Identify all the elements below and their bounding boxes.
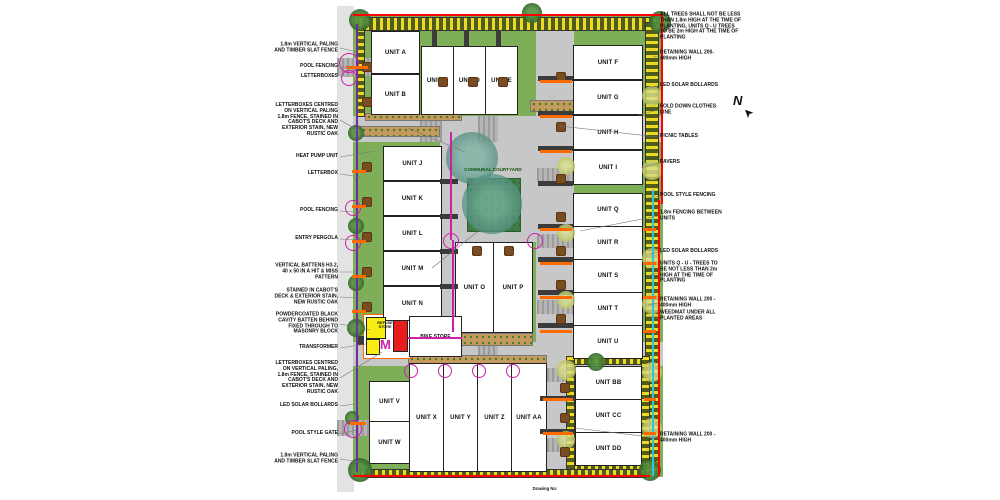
unit-label: UNIT DD bbox=[596, 446, 622, 452]
picnic-table bbox=[472, 246, 482, 256]
tree bbox=[349, 9, 371, 31]
garden-bed bbox=[455, 333, 533, 346]
courtyard-tree bbox=[462, 174, 522, 234]
unit-label: UNIT K bbox=[402, 196, 423, 202]
pool-fence-line bbox=[408, 337, 462, 339]
pool-gate-m: M bbox=[380, 338, 391, 351]
annotation-left: POOL FENCING bbox=[274, 64, 338, 70]
picnic-table bbox=[560, 383, 570, 393]
annotation-left: TRANSFORMER bbox=[274, 345, 338, 351]
unit-label: UNIT R bbox=[597, 240, 618, 246]
entry-pergola bbox=[643, 262, 656, 265]
picnic-table bbox=[560, 447, 570, 457]
unit-label: UNIT CC bbox=[596, 413, 622, 419]
entry-pergola bbox=[643, 228, 656, 231]
pool-fence-line bbox=[452, 240, 454, 332]
entry-pergola bbox=[540, 296, 572, 299]
unit-label: UNIT P bbox=[503, 285, 524, 291]
annotation-left: 1.8m VERTICAL PALING AND TIMBER SLAT FEN… bbox=[274, 453, 338, 465]
picnic-table bbox=[560, 413, 570, 423]
unit-building: UNIT J bbox=[383, 146, 442, 181]
picnic-table bbox=[556, 212, 566, 222]
garage-apron bbox=[440, 284, 458, 289]
picnic-table bbox=[362, 97, 372, 107]
unit-label: UNIT U bbox=[597, 339, 618, 345]
annotation-right: UNITS Q - U - TREES TO BE NOT LESS THAN … bbox=[660, 262, 722, 285]
unit-building: UNIT DD bbox=[575, 432, 642, 466]
entry-pergola bbox=[350, 422, 366, 425]
unit-label: UNIT S bbox=[598, 273, 619, 279]
picnic-table bbox=[556, 174, 566, 184]
unit-label: UNIT G bbox=[597, 95, 619, 101]
picnic-table bbox=[468, 77, 478, 87]
annotation-left: LETTERBOXES CENTRED ON VERTICAL PALING 1… bbox=[274, 103, 338, 138]
entry-pergola bbox=[352, 170, 366, 173]
unit-label: UNIT M bbox=[402, 266, 424, 272]
annotation-right: FOLD DOWN CLOTHES LINE bbox=[660, 104, 722, 116]
picnic-table bbox=[556, 122, 566, 132]
garage-apron bbox=[464, 30, 469, 46]
unit-building: UNIT S bbox=[573, 259, 643, 293]
unit-label: UNIT Z bbox=[484, 415, 505, 421]
tree bbox=[642, 160, 662, 180]
garage-apron bbox=[440, 179, 458, 184]
unit-building: UNIT M bbox=[383, 251, 442, 286]
entry-pergola bbox=[352, 275, 366, 278]
entry-pergola bbox=[346, 66, 368, 69]
entry-pergola bbox=[644, 432, 656, 435]
pool-gate-arc bbox=[443, 233, 459, 249]
entry-pergola bbox=[352, 310, 366, 313]
pool-gate-arc bbox=[345, 235, 361, 251]
annotation-right: RETAINING WALL 200 - 400mm HIGH bbox=[660, 297, 722, 309]
picnic-table bbox=[498, 77, 508, 87]
unit-building: UNIT G bbox=[573, 80, 643, 115]
annotation-left: LED SOLAR BOLLARDS bbox=[274, 403, 338, 409]
boundary-red-bottom bbox=[353, 475, 650, 477]
picnic-table bbox=[556, 246, 566, 256]
unit-label: UNIT AA bbox=[516, 415, 542, 421]
tree bbox=[557, 224, 575, 242]
unit-building: UNIT H bbox=[573, 115, 643, 150]
annotation-left: LETTERBOXES CENTRED ON VERTICAL PALING, … bbox=[274, 361, 338, 396]
entry-pergola bbox=[543, 432, 573, 435]
unit-building: UNIT K bbox=[383, 181, 442, 216]
unit-building: UNIT CC bbox=[575, 399, 642, 433]
unit-label: UNIT Y bbox=[450, 415, 471, 421]
annotation-left: LETTERBOXES bbox=[274, 74, 338, 80]
annotation-left: STAINED IN CABOT'S DECK & EXTERIOR STAIN… bbox=[274, 288, 338, 305]
unit-label: UNIT I bbox=[599, 165, 618, 171]
unit-label: UNIT B bbox=[385, 92, 406, 98]
entry-pergola bbox=[643, 296, 656, 299]
unit-label: UNIT J bbox=[402, 161, 422, 167]
communal-courtyard-label: COMMUNAL COURTYARD bbox=[455, 167, 531, 172]
annotation-right: LED SOLAR BOLLARDS bbox=[660, 83, 722, 89]
unit-label: UNIT BB bbox=[596, 380, 622, 386]
entry-pergola bbox=[540, 228, 572, 231]
north-arrow: N ➤ bbox=[733, 92, 742, 110]
annotation-left: LETTERBOX bbox=[274, 171, 338, 177]
annotation-left: POOL STYLE GATE bbox=[274, 431, 338, 437]
unit-label: UNIT X bbox=[416, 415, 437, 421]
tree bbox=[557, 291, 575, 309]
pool-gate-arc bbox=[404, 364, 418, 378]
picnic-table bbox=[438, 77, 448, 87]
unit-label: UNIT V bbox=[379, 399, 400, 405]
unit-building: UNIT U bbox=[573, 325, 643, 359]
picnic-table bbox=[504, 246, 514, 256]
pool-gate-arc bbox=[506, 364, 520, 378]
drawing-caption: Drawing No: bbox=[505, 486, 585, 491]
pool-gate-arc bbox=[472, 364, 486, 378]
picnic-table bbox=[556, 314, 566, 324]
entry-pergola bbox=[543, 398, 573, 401]
annotation-left: ENTRY PERGOLA bbox=[274, 236, 338, 242]
unit-label: UNIT Q bbox=[597, 207, 619, 213]
unit-label: UNIT N bbox=[402, 301, 423, 307]
unit-building: UNIT V bbox=[369, 381, 410, 422]
site-plan-canvas: UNIT AUNIT BUNIT CUNIT DUNIT EUNIT FUNIT… bbox=[0, 0, 1000, 500]
unit-building: UNIT Q bbox=[573, 193, 643, 227]
pool-gate-arc bbox=[345, 200, 361, 216]
unit-label: UNIT H bbox=[597, 130, 618, 136]
unit-building: UNIT Y bbox=[443, 363, 478, 472]
entry-pergola bbox=[643, 330, 656, 333]
annotation-left: POWDERCOATED BLACK CAVITY BATTEN BEHIND … bbox=[274, 313, 338, 336]
hedge-top bbox=[358, 17, 662, 31]
tree bbox=[348, 458, 372, 482]
annotation-left: VERTICAL BATTENS H3.2, 40 x 50 IN A HIT … bbox=[274, 263, 338, 280]
entry-pergola bbox=[540, 150, 572, 153]
unit-building: UNIT B bbox=[371, 74, 420, 115]
pool-gate-arc bbox=[438, 364, 452, 378]
north-label: N bbox=[733, 93, 742, 108]
annotation-right: LED SOLAR BOLLARDS bbox=[660, 249, 722, 255]
annotation-right: PAVERS bbox=[660, 160, 722, 166]
picnic-table bbox=[556, 280, 566, 290]
entry-pergola bbox=[540, 80, 572, 83]
entry-pergola bbox=[540, 262, 572, 265]
unit-label: UNIT T bbox=[598, 306, 619, 312]
annotation-right: POOL STYLE FENCING bbox=[660, 193, 722, 199]
unit-building: UNIT A bbox=[371, 31, 420, 74]
annotation-left: HEAT PUMP UNIT bbox=[274, 154, 338, 160]
unit-building: UNIT W bbox=[369, 421, 410, 464]
unit-label: UNIT W bbox=[378, 440, 401, 446]
tree bbox=[557, 157, 575, 175]
annotation-right: WEEDMAT UNDER ALL PLANTED AREAS bbox=[660, 310, 722, 322]
annotation-right: 1.8m FENCING BETWEEN UNITS bbox=[660, 210, 722, 222]
boundary-red-top bbox=[353, 14, 663, 16]
tree bbox=[642, 86, 662, 106]
entry-pergola bbox=[352, 240, 366, 243]
entry-pergola bbox=[540, 115, 572, 118]
unit-building: UNIT BB bbox=[575, 366, 642, 400]
annotation-right: RETAINING WALL 200-400mm HIGH bbox=[660, 50, 722, 62]
transformer bbox=[358, 336, 364, 345]
unit-building: UNIT L bbox=[383, 216, 442, 251]
unit-label: UNIT O bbox=[464, 285, 486, 291]
unit-building: UNIT AA bbox=[511, 363, 547, 472]
unit-building: UNIT I bbox=[573, 150, 643, 185]
garage-apron bbox=[440, 249, 458, 254]
unit-building: UNIT F bbox=[573, 45, 643, 80]
unit-building: UNIT Z bbox=[477, 363, 512, 472]
refuse-bin-red bbox=[393, 320, 408, 352]
tree bbox=[556, 360, 576, 380]
unit-label: UNIT A bbox=[385, 50, 406, 56]
unit-label: UNIT L bbox=[402, 231, 423, 237]
garage-apron bbox=[538, 323, 573, 328]
entry-pergola bbox=[352, 205, 366, 208]
entry-pergola bbox=[540, 330, 572, 333]
garage-apron bbox=[496, 30, 501, 46]
refuse-bin bbox=[366, 339, 380, 355]
unit-label: UNIT F bbox=[598, 60, 619, 66]
unit-building: UNIT R bbox=[573, 226, 643, 260]
garden-bed bbox=[360, 126, 440, 137]
pool-fence-line bbox=[450, 132, 452, 240]
annotation-right: RETAINING WALL 200 - 400mm HIGH bbox=[660, 432, 722, 444]
unit-building: UNIT T bbox=[573, 292, 643, 326]
garage-apron bbox=[440, 214, 458, 219]
garage-apron bbox=[432, 30, 437, 46]
entry-pergola bbox=[644, 398, 656, 401]
annotation-left: POOL FENCING bbox=[274, 208, 338, 214]
annotation-right: ALL TREES SHALL NOT BE LESS THAN 1.8m HI… bbox=[660, 13, 742, 42]
unit-building: UNIT X bbox=[409, 363, 444, 472]
tree bbox=[522, 3, 542, 23]
tree bbox=[587, 353, 605, 371]
annotation-right: PICNIC TABLES bbox=[660, 134, 722, 140]
annotation-left: 1.8m VERTICAL PALING AND TIMBER SLAT FEN… bbox=[274, 42, 338, 54]
pool-gate-arc bbox=[341, 70, 357, 86]
refuse-store-label: REFUSE STORE bbox=[376, 321, 394, 329]
pool-gate-arc bbox=[527, 233, 543, 249]
